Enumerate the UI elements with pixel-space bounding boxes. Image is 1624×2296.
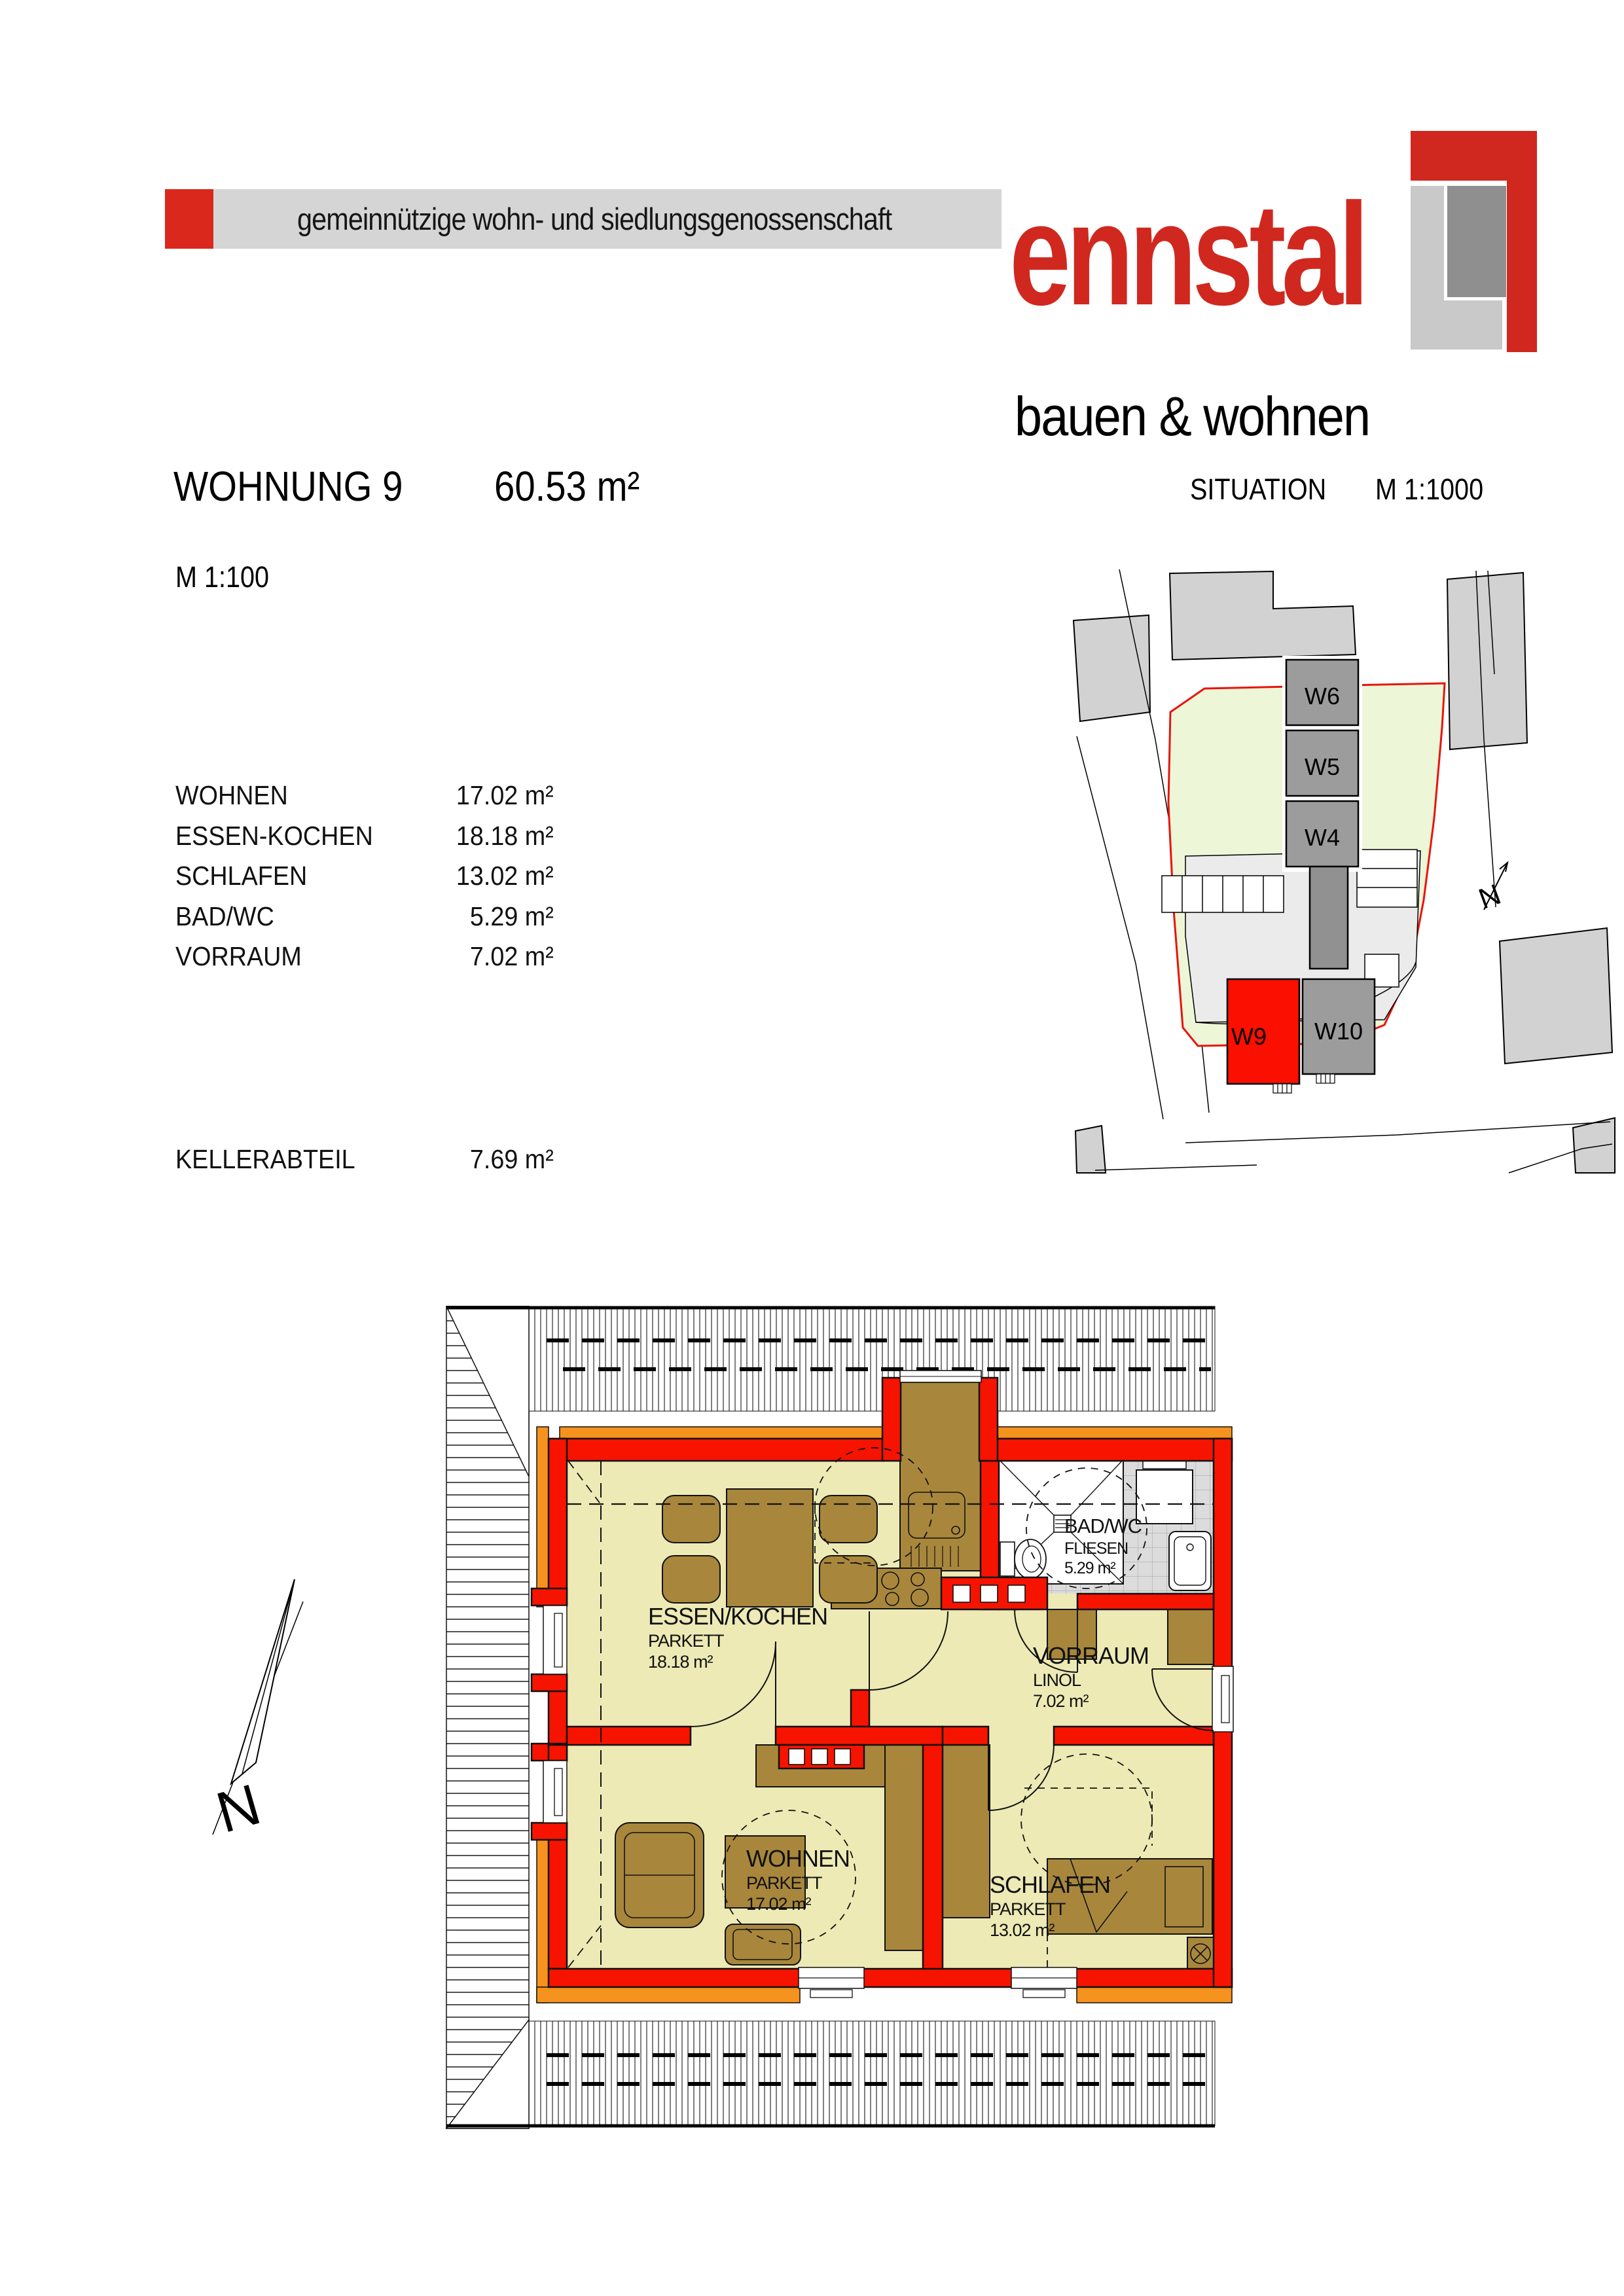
window-sill (554, 1768, 562, 1816)
cellar-row: KELLERABTEIL 7.69 m² (175, 1144, 554, 1175)
situation-north-label: N (1475, 878, 1506, 916)
room-row: BAD/WC 5.29 m² (175, 901, 554, 942)
bath-shelf (1143, 1461, 1186, 1469)
room-list: WOHNEN 17.02 m² ESSEN-KOCHEN 18.18 m² SC… (175, 780, 554, 982)
situation-map: W6 W5 W4 W9 W10 N (1057, 543, 1617, 1175)
label-essen-floor: PARKETT (648, 1631, 724, 1651)
vorraum-closet-right (1168, 1609, 1214, 1664)
kitchen-shaft-counter (900, 1382, 981, 1571)
label-vorraum: VORRAUM (1033, 1642, 1149, 1669)
dining-table (727, 1489, 813, 1607)
room-row: ESSEN-KOCHEN 18.18 m² (175, 821, 554, 861)
brand-subtitle-wrap: bauen & wohnen (1015, 385, 1409, 448)
room-row: WOHNEN 17.02 m² (175, 780, 554, 821)
apartment-area: 60.53 m² (494, 462, 640, 511)
cellar-name: KELLERABTEIL (175, 1144, 355, 1175)
brand-subtitle: bauen & wohnen (1015, 385, 1369, 448)
room-area: 13.02 m² (456, 861, 554, 891)
label-schlafen-floor: PARKETT (990, 1899, 1066, 1919)
header-banner: gemeinnützige wohn- und siedlungsgenosse… (165, 189, 1001, 249)
label-vorraum-floor: LINOL (1033, 1670, 1081, 1690)
roof-band-top (529, 1306, 1215, 1411)
label-wohnen-floor: PARKETT (746, 1873, 822, 1893)
unit-label-w6: W6 (1305, 683, 1340, 709)
room-area: 5.29 m² (470, 901, 554, 932)
wohnen-closet-side (885, 1745, 923, 1950)
label-essen-area: 18.18 m² (648, 1652, 713, 1672)
plan-north-arrow: N (193, 1568, 331, 1842)
page-title: WOHNUNG 9 60.53 m² (173, 462, 660, 511)
label-essen-kochen: ESSEN/KOCHEN (648, 1603, 827, 1630)
wc-bowl (1015, 1539, 1046, 1579)
unit-label-w5: W5 (1305, 753, 1340, 780)
label-badwc-area: 5.29 m² (1064, 1559, 1115, 1577)
dining-chair (662, 1496, 720, 1543)
room-row: SCHLAFEN 13.02 m² (175, 861, 554, 901)
label-schlafen: SCHLAFEN (990, 1871, 1110, 1898)
logo-mark-red-right (1507, 131, 1537, 352)
plan-scale: M 1:100 (175, 560, 269, 594)
unit-label-w10: W10 (1314, 1018, 1363, 1045)
window-sill (1023, 1990, 1065, 1998)
unit-corridor (1310, 867, 1348, 969)
floor-plan: ESSEN/KOCHEN PARKETT 18.18 m² VORRAUM LI… (432, 1302, 1237, 2160)
unit-label-w9: W9 (1231, 1023, 1267, 1050)
room-name: WOHNEN (175, 780, 288, 811)
unit-label-w4: W4 (1305, 824, 1340, 851)
dining-chair (820, 1496, 877, 1543)
window-sill (810, 1990, 852, 1998)
room-name: ESSEN-KOCHEN (175, 821, 373, 852)
situation-heading: SITUATION (1190, 473, 1326, 507)
room-name: VORRAUM (175, 941, 302, 972)
banner-red-block (165, 189, 213, 249)
bathtub (1169, 1532, 1211, 1590)
logo-mark-dark-square (1444, 186, 1506, 300)
washing-machine (1136, 1470, 1193, 1524)
dining-chair (662, 1556, 720, 1603)
label-badwc-floor: FLIESEN (1064, 1539, 1128, 1558)
window-sill (1221, 1676, 1229, 1723)
room-area: 18.18 m² (456, 821, 554, 852)
roof-band-bottom (529, 2021, 1215, 2126)
situation-north-arrow: N (1475, 863, 1507, 916)
plan-scale-wrap: M 1:100 (175, 560, 282, 594)
apartment-title: WOHNUNG 9 (173, 462, 403, 511)
cellar-area: 7.69 m² (470, 1144, 554, 1175)
label-schlafen-area: 13.02 m² (990, 1920, 1055, 1940)
situation-heading-row: SITUATION M 1:1000 (1190, 473, 1498, 507)
situation-scale: M 1:1000 (1375, 473, 1483, 507)
window-sill (554, 1613, 562, 1667)
schlafen-closet (943, 1745, 990, 1918)
label-vorraum-area: 7.02 m² (1033, 1691, 1089, 1711)
brand-name: ennstal (1009, 182, 1365, 327)
label-wohnen: WOHNEN (746, 1845, 850, 1872)
banner-text: gemeinnützige wohn- und siedlungsgenosse… (297, 201, 892, 237)
room-area: 7.02 m² (470, 941, 554, 972)
room-row: VORRAUM 7.02 m² (175, 941, 554, 982)
room-name: BAD/WC (175, 901, 274, 932)
label-badwc: BAD/WC (1064, 1515, 1142, 1537)
brand-logo-wordmark: ennstal (1009, 182, 1477, 327)
wc-tank (1000, 1542, 1015, 1576)
room-name: SCHLAFEN (175, 861, 307, 891)
room-area: 17.02 m² (456, 780, 554, 811)
plan-north-label: N (209, 1771, 267, 1842)
label-wohnen-area: 17.02 m² (746, 1894, 812, 1914)
